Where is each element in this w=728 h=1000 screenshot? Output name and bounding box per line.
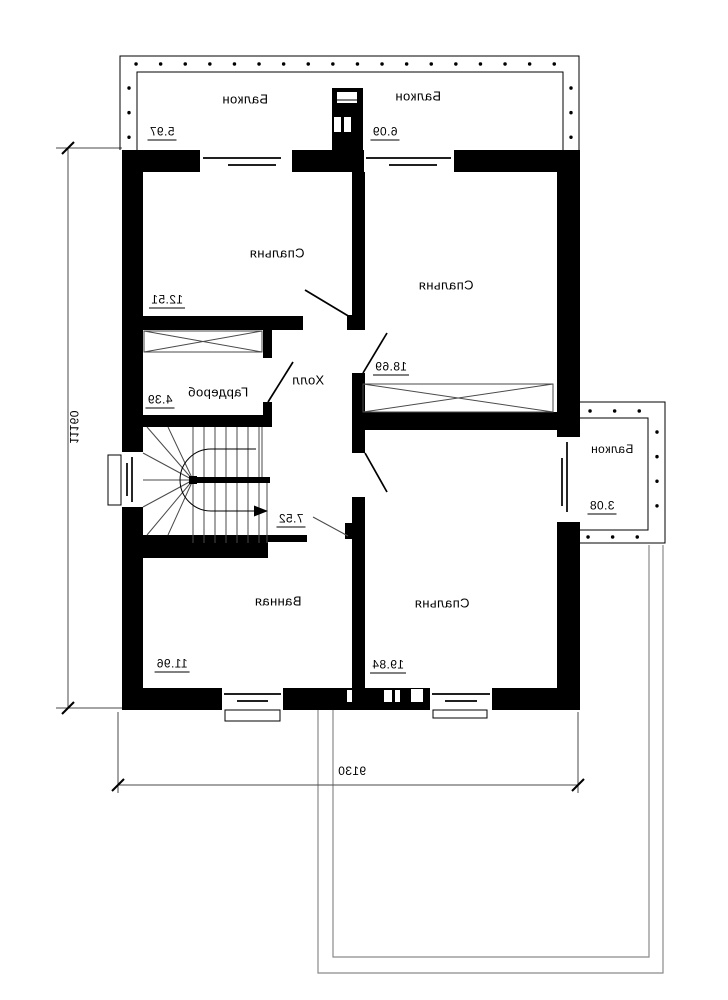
room-label-bathroom: Ванная <box>255 595 302 608</box>
door-bedroom-bottom <box>365 453 387 492</box>
stair-direction-arrow <box>254 506 268 517</box>
area-label-bedroom-top-right: 18.69 <box>373 361 409 376</box>
wall-top <box>122 150 580 172</box>
balcony-door-right <box>556 437 580 522</box>
dimension-overall-width: 9130 <box>338 765 366 777</box>
room-label-hall: Холл <box>292 374 324 387</box>
room-label-balcony-top-left: Балкон <box>222 93 268 106</box>
area-label-bedroom-bottom: 19.84 <box>370 659 406 674</box>
area-label-balcony-top-left: 5.97 <box>148 126 177 141</box>
room-label-balcony-top-right: Балкон <box>395 90 441 103</box>
wall-left <box>122 150 143 710</box>
door-wardrobe <box>268 362 293 402</box>
room-label-bedroom-bottom: Спальня <box>414 597 469 610</box>
area-label-balcony-right: 3.08 <box>588 500 617 515</box>
dimension-overall-depth: 11160 <box>68 410 80 444</box>
window-top-1 <box>200 149 292 173</box>
shaft-x-box <box>144 331 262 352</box>
wardrobe-x-box <box>363 384 553 412</box>
room-label-wardrobe: Гардероб <box>188 386 248 399</box>
terrace-outline <box>318 545 663 973</box>
window-bottom-2 <box>430 687 492 718</box>
interior-walls <box>143 172 557 710</box>
window-bottom-1 <box>222 687 283 721</box>
area-label-wardrobe: 4.39 <box>146 394 175 409</box>
area-label-hall: 7.52 <box>277 513 306 528</box>
staircase <box>143 427 270 543</box>
area-label-bathroom: 11.96 <box>154 658 189 673</box>
door-bedroom-top-left <box>305 290 350 317</box>
hall-area-leader <box>313 517 348 536</box>
windows <box>108 149 580 721</box>
wall-right <box>557 150 580 710</box>
room-label-bedroom-top-left: Спальня <box>249 247 304 260</box>
floorplan-drawing <box>0 0 728 1000</box>
window-left <box>108 452 143 507</box>
area-label-bedroom-top-left: 12.51 <box>149 294 185 309</box>
room-label-balcony-right: Балкон <box>591 443 634 455</box>
area-label-balcony-top-right: 6.09 <box>371 126 400 141</box>
floor-plan: Балкон 5.97 Балкон 6.09 Спальня 12.51 Сп… <box>0 0 728 1000</box>
window-top-2 <box>364 149 454 173</box>
room-label-bedroom-top-right: Спальня <box>418 279 473 292</box>
balcony-right-railing <box>580 402 665 543</box>
